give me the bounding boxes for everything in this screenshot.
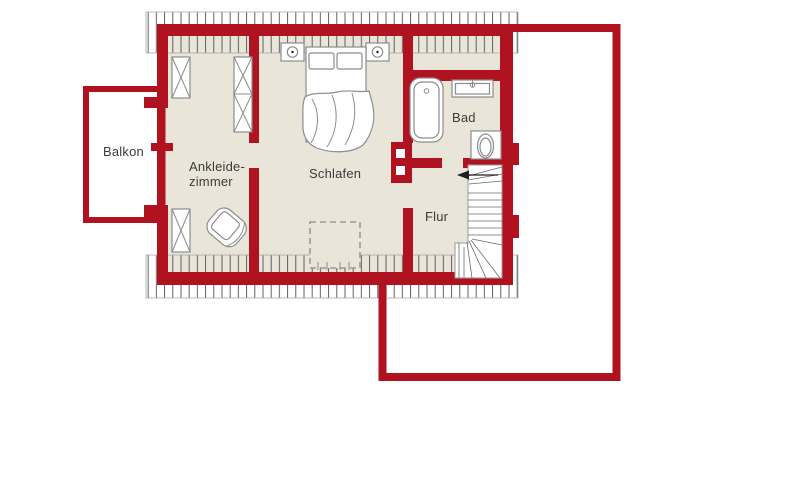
floor-plan-page: Balkon Ankleide- zimmer Schlafen Bad Flu… [0, 0, 800, 500]
wall-right-jamb [500, 143, 519, 165]
wall-top [157, 24, 513, 36]
room-label-line: zimmer [189, 174, 245, 189]
door-jamb-post [396, 166, 405, 175]
door-jamb-block [391, 142, 412, 183]
wardrobe [172, 209, 190, 252]
wall-right-jamb [500, 215, 519, 238]
room-label-schlafen: Schlafen [309, 166, 361, 181]
wall-left-upper [157, 24, 168, 108]
bathtub [410, 78, 443, 142]
skylight-dashed-marker [310, 222, 360, 270]
balcony-door-jamb [144, 97, 157, 108]
wall-flur-left [403, 208, 413, 272]
washbasin [452, 80, 493, 97]
balcony-door-jamb [144, 205, 158, 218]
door-jamb-post [396, 149, 405, 158]
nightstand [281, 43, 304, 61]
nightstand [366, 43, 389, 61]
room-label-flur: Flur [425, 209, 448, 224]
wardrobe [172, 57, 190, 98]
floor-plan [0, 0, 800, 500]
room-label-balkon: Balkon [103, 144, 144, 159]
double-bed [303, 47, 374, 152]
room-label-bad: Bad [452, 110, 476, 125]
wardrobe [234, 57, 252, 132]
balcony-door-mullion [151, 143, 173, 151]
balcony-door [160, 108, 166, 205]
room-label-line: Ankleide- [189, 159, 245, 174]
room-label-ankleidezimmer: Ankleide- zimmer [189, 159, 245, 189]
wall-bad-flur-left [411, 158, 442, 168]
toilet [471, 131, 501, 159]
wall-ankleide-schlafen-lower [249, 168, 259, 272]
